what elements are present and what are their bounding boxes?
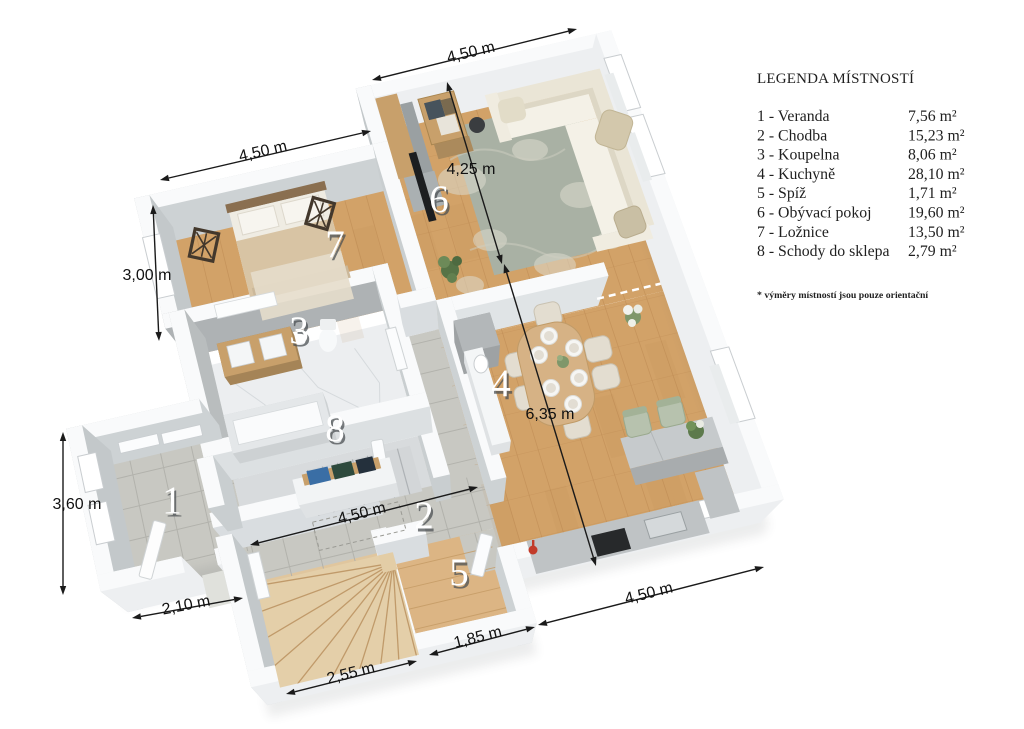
svg-text:6,35 m: 6,35 m — [526, 406, 575, 423]
svg-text:4: 4 — [491, 362, 511, 405]
svg-text:6: 6 — [429, 178, 449, 221]
svg-text:5 - Spíž: 5 - Spíž — [757, 185, 806, 202]
svg-text:28,10 m²: 28,10 m² — [908, 166, 965, 183]
svg-text:15,23 m²: 15,23 m² — [908, 127, 965, 144]
svg-text:1,71 m²: 1,71 m² — [908, 185, 957, 202]
svg-text:8,06 m²: 8,06 m² — [908, 147, 957, 164]
svg-text:19,60 m²: 19,60 m² — [908, 205, 965, 222]
svg-text:4,25 m: 4,25 m — [447, 161, 496, 178]
svg-text:7 - Ložnice: 7 - Ložnice — [757, 224, 829, 241]
svg-text:LEGENDA MÍSTNOSTÍ: LEGENDA MÍSTNOSTÍ — [757, 70, 914, 87]
svg-text:2 - Chodba: 2 - Chodba — [757, 127, 827, 144]
svg-text:6 - Obývací pokoj: 6 - Obývací pokoj — [757, 205, 872, 222]
svg-text:4 - Kuchyně: 4 - Kuchyně — [757, 166, 835, 183]
svg-text:3: 3 — [289, 309, 309, 352]
svg-text:3 - Koupelna: 3 - Koupelna — [757, 147, 839, 164]
svg-text:* výměry místností jsou pouze: * výměry místností jsou pouze orientační — [757, 290, 928, 301]
svg-text:2: 2 — [414, 494, 434, 537]
svg-text:5: 5 — [449, 551, 469, 594]
svg-text:3,00 m: 3,00 m — [123, 267, 172, 284]
svg-text:7: 7 — [325, 223, 345, 266]
svg-text:2,79 m²: 2,79 m² — [908, 243, 957, 260]
svg-text:1: 1 — [162, 479, 182, 522]
svg-text:1 - Veranda: 1 - Veranda — [757, 108, 830, 125]
svg-text:8: 8 — [325, 407, 345, 450]
svg-text:13,50 m²: 13,50 m² — [908, 224, 965, 241]
svg-text:8 - Schody do sklepa: 8 - Schody do sklepa — [757, 243, 890, 260]
svg-text:3,60 m: 3,60 m — [53, 496, 102, 513]
svg-text:7,56 m²: 7,56 m² — [908, 108, 957, 125]
